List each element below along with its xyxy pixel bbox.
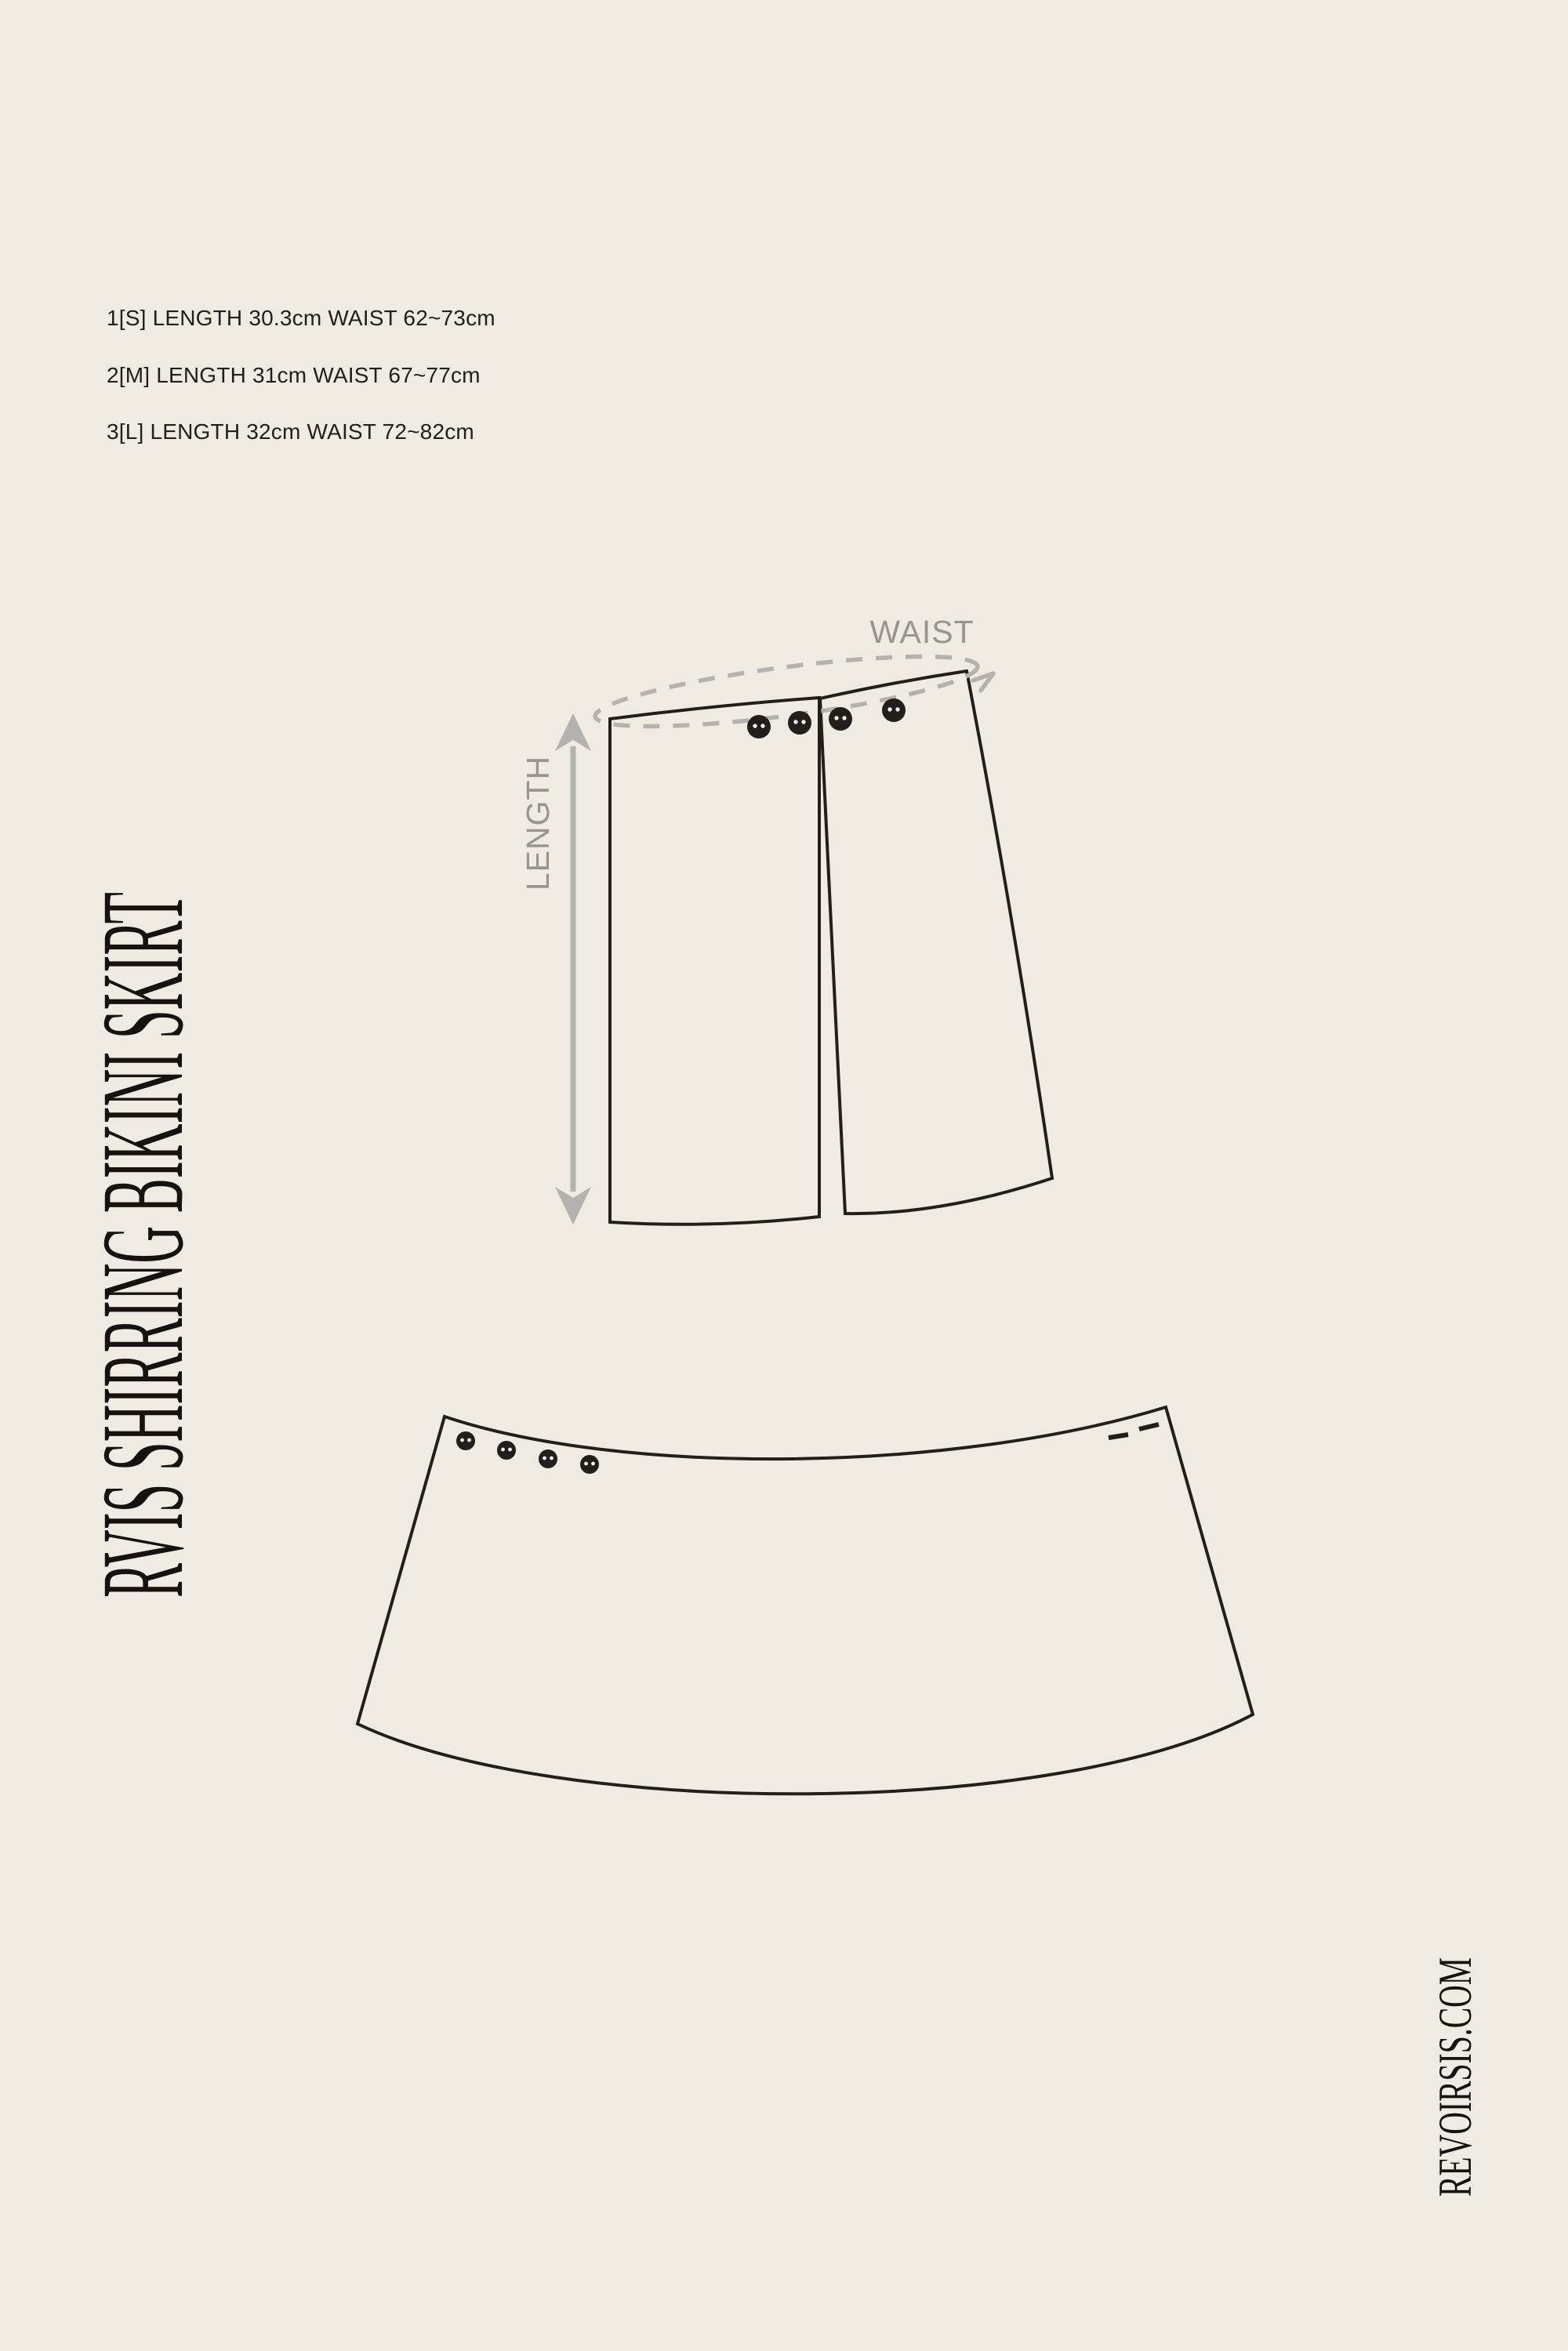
button-icon xyxy=(456,1431,475,1450)
button-icon xyxy=(497,1441,516,1460)
size-guide-page: 1[S] LENGTH 30.3cm WAIST 62~73cm 2[M] LE… xyxy=(0,0,1568,2351)
size-line-m: 2[M] LENGTH 31cm WAIST 67~77cm xyxy=(107,362,481,389)
button-icon xyxy=(580,1455,599,1474)
button-icon xyxy=(747,715,771,738)
website-vertical: REVOIRSIS.COM xyxy=(1432,1944,1482,2203)
product-title-vertical: RVIS SHIRRING BIKINI SKIRT xyxy=(93,886,196,1603)
flat-pattern-diagram xyxy=(329,1380,1301,1834)
length-label: LENGTH xyxy=(520,756,556,891)
button-icon xyxy=(882,698,906,722)
skirt-right-panel xyxy=(820,671,1052,1214)
length-arrow-icon xyxy=(555,713,591,1224)
size-line-l: 3[L] LENGTH 32cm WAIST 72~82cm xyxy=(107,419,474,445)
product-title: RVIS SHIRRING BIKINI SKIRT xyxy=(93,892,196,1598)
size-line-s: 1[S] LENGTH 30.3cm WAIST 62~73cm xyxy=(107,305,495,332)
waist-label: WAIST xyxy=(869,614,974,650)
front-view-diagram: WAIST LENGTH xyxy=(502,596,1113,1301)
button-icon xyxy=(788,711,811,735)
button-icon xyxy=(539,1449,557,1468)
website-url: REVOIRSIS.COM xyxy=(1432,1957,1481,2197)
pattern-outline xyxy=(358,1407,1253,1794)
button-icon xyxy=(829,707,852,731)
waist-arrow-icon xyxy=(973,673,993,691)
skirt-left-panel xyxy=(610,698,819,1224)
